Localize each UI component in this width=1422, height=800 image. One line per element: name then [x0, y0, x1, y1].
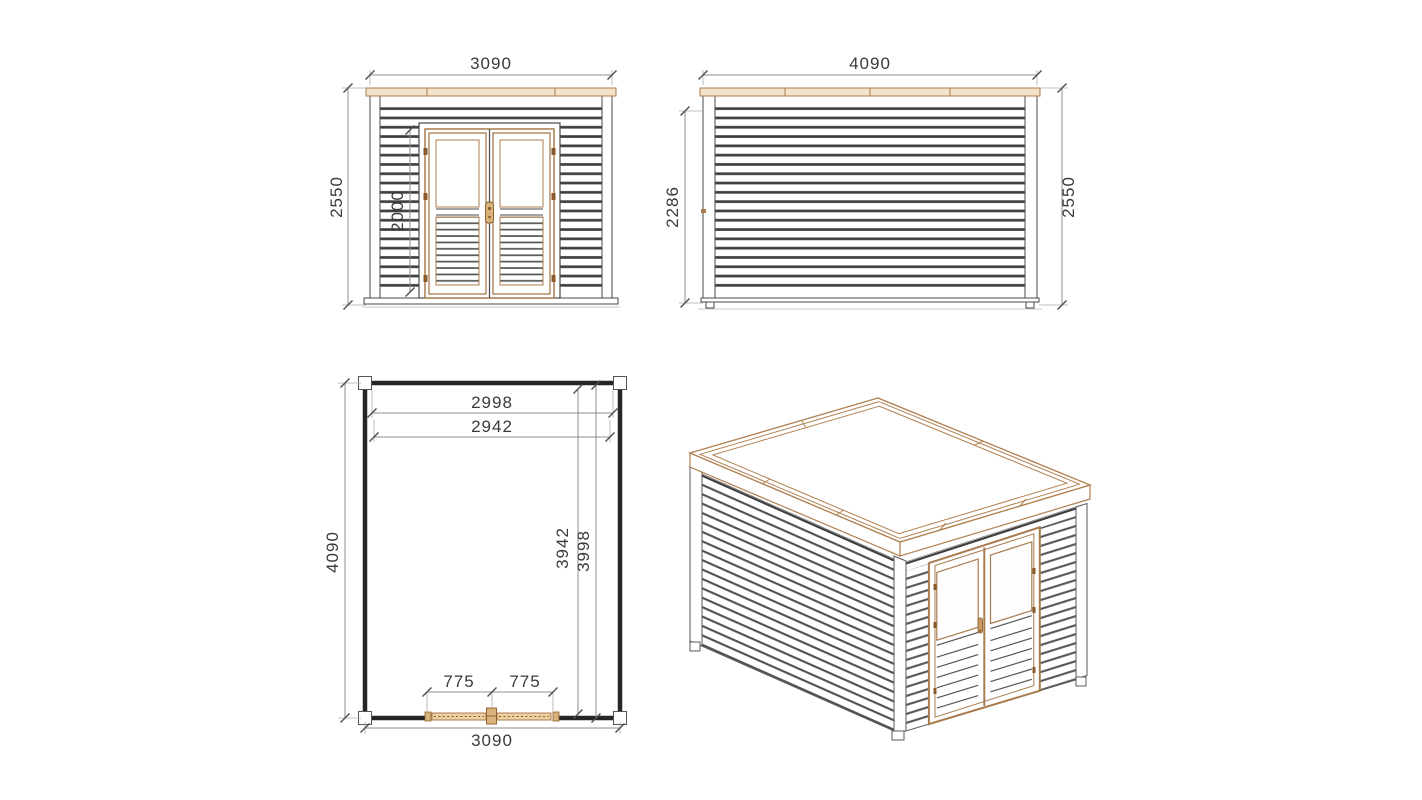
floor-plan-view: 2998 2942 4090 3942	[320, 362, 650, 762]
front-height-label: 2550	[330, 176, 346, 218]
hinge	[552, 275, 556, 282]
iso-door-handle	[978, 618, 983, 633]
side-wall-height-label: 2286	[663, 186, 682, 228]
side-height-label: 2550	[1059, 176, 1078, 218]
side-width-label: 4090	[849, 54, 891, 73]
plan-inner-length-a-label: 3942	[553, 527, 572, 569]
front-elevation-view: 3090 2550 2000	[330, 45, 650, 323]
plan-door-leaf-right-label: 775	[509, 672, 540, 691]
plan-width-label: 3090	[471, 731, 513, 750]
front-width-label: 3090	[470, 54, 512, 73]
iso-front-corner-post	[894, 556, 906, 731]
plan-length-label: 4090	[323, 531, 342, 573]
door-slats-left	[436, 217, 479, 285]
hinge	[552, 148, 556, 155]
corner-post	[614, 377, 627, 390]
wall-connector	[701, 209, 706, 213]
door-glass-left	[436, 140, 479, 207]
foot	[1026, 302, 1034, 308]
base-strip	[364, 298, 618, 304]
iso-door-glass-right	[991, 542, 1032, 624]
door-height-label: 2000	[388, 190, 407, 232]
side-wall-slats	[715, 103, 1025, 293]
plan-inner-width-top-label: 2998	[471, 393, 513, 412]
door-jamb	[553, 712, 559, 721]
foot	[690, 642, 700, 651]
front-elevation-drawing: 3090 2550 2000	[330, 45, 650, 323]
side-building	[698, 88, 1042, 309]
iso-double-door	[929, 527, 1040, 724]
door-jamb	[425, 712, 431, 721]
iso-door-glass-left	[937, 559, 978, 640]
iso-right-corner-post	[1076, 504, 1087, 680]
side-elevation-drawing: 4090 2286 2550	[660, 45, 1110, 323]
floor-plan-drawing: 2998 2942 4090 3942	[320, 362, 650, 762]
base-strip	[701, 298, 1039, 302]
isometric-drawing	[678, 372, 1118, 762]
door-slats-right	[500, 217, 543, 285]
foot	[892, 731, 904, 740]
foot	[1076, 677, 1086, 686]
foot	[706, 302, 714, 308]
roof-fascia	[366, 88, 616, 96]
plan-inner-width-second-label: 2942	[471, 417, 513, 436]
plan-inner-length-b-label: 3998	[574, 530, 593, 572]
iso-left-corner-post	[690, 467, 702, 646]
door-handle	[486, 202, 494, 223]
plan-door-leaf-left-label: 775	[443, 672, 474, 691]
door-glass-right	[500, 140, 543, 207]
hinge	[552, 193, 556, 200]
hinge	[424, 148, 428, 155]
plan-door	[425, 708, 559, 724]
double-door	[419, 123, 560, 298]
isometric-view	[678, 372, 1118, 762]
technical-drawing-sheet: 3090 2550 2000	[0, 0, 1422, 800]
hinge	[424, 275, 428, 282]
side-elevation-view: 4090 2286 2550	[660, 45, 1110, 323]
hinge	[424, 193, 428, 200]
